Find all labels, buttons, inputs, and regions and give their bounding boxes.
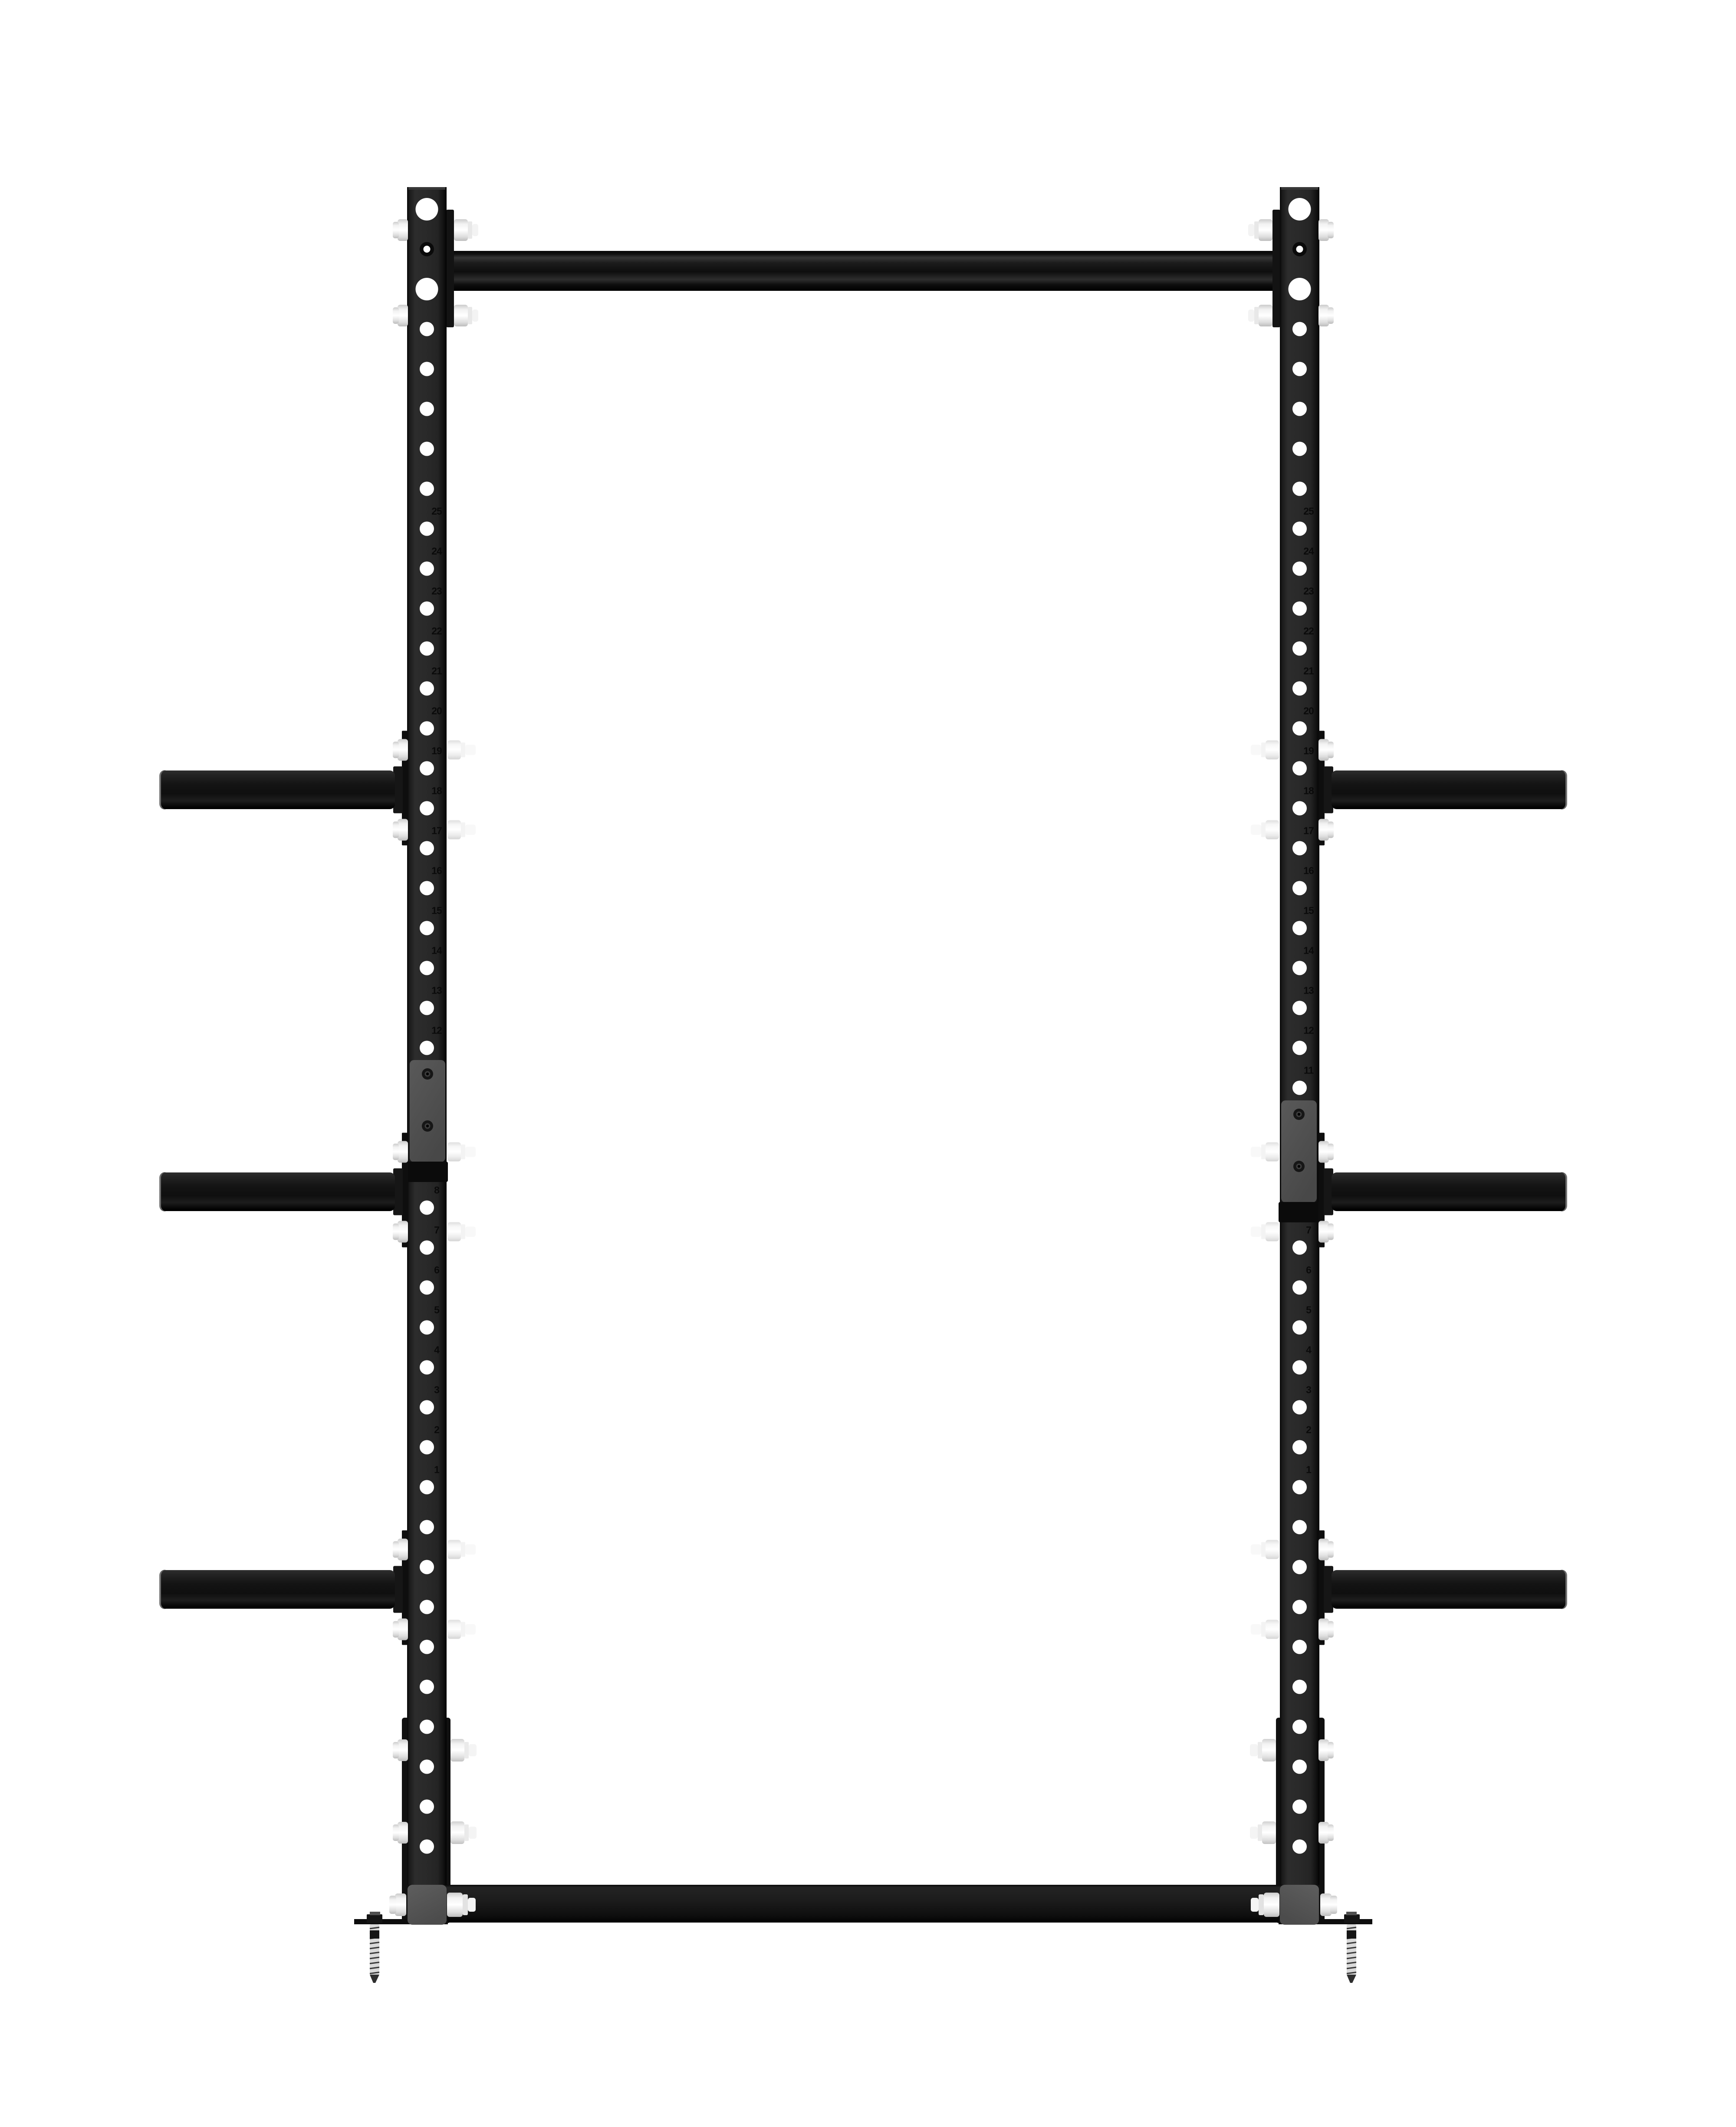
svg-text:15: 15 (1303, 905, 1314, 916)
svg-text:6: 6 (1306, 1264, 1311, 1276)
svg-text:8: 8 (434, 1185, 440, 1196)
svg-text:2: 2 (434, 1424, 439, 1436)
svg-text:11: 11 (1304, 1065, 1314, 1076)
svg-text:21: 21 (431, 665, 442, 677)
svg-text:13: 13 (1303, 985, 1314, 996)
svg-text:23: 23 (1303, 586, 1314, 597)
svg-text:23: 23 (431, 586, 442, 597)
svg-text:16: 16 (431, 865, 442, 876)
svg-text:2: 2 (1306, 1424, 1311, 1436)
svg-text:12: 12 (431, 1025, 442, 1036)
svg-text:5: 5 (434, 1304, 440, 1316)
svg-text:16: 16 (1303, 865, 1314, 876)
svg-text:20: 20 (431, 705, 442, 717)
svg-text:1: 1 (1306, 1464, 1312, 1475)
svg-text:18: 18 (1303, 785, 1314, 797)
svg-text:12: 12 (1303, 1025, 1314, 1036)
svg-text:25: 25 (1303, 506, 1314, 517)
svg-text:19: 19 (1303, 745, 1314, 757)
svg-text:22: 22 (431, 626, 442, 637)
svg-text:4: 4 (434, 1344, 440, 1356)
svg-text:24: 24 (1303, 546, 1314, 557)
svg-text:14: 14 (431, 945, 442, 956)
svg-text:17: 17 (1303, 825, 1314, 836)
svg-text:7: 7 (434, 1225, 439, 1236)
svg-text:14: 14 (1303, 945, 1314, 956)
svg-text:17: 17 (431, 825, 442, 836)
svg-text:21: 21 (1303, 665, 1314, 677)
svg-text:3: 3 (434, 1384, 439, 1396)
svg-text:18: 18 (431, 785, 442, 797)
svg-text:3: 3 (1306, 1384, 1311, 1396)
svg-text:5: 5 (1306, 1304, 1312, 1316)
svg-text:20: 20 (1303, 705, 1314, 717)
svg-text:6: 6 (434, 1264, 439, 1276)
svg-text:1: 1 (434, 1464, 440, 1475)
svg-text:25: 25 (431, 506, 442, 517)
svg-text:15: 15 (431, 905, 442, 916)
svg-text:24: 24 (431, 546, 442, 557)
svg-text:19: 19 (431, 745, 442, 757)
svg-text:13: 13 (431, 985, 442, 996)
svg-text:22: 22 (1303, 626, 1314, 637)
svg-text:7: 7 (1306, 1225, 1311, 1236)
svg-text:4: 4 (1306, 1344, 1312, 1356)
